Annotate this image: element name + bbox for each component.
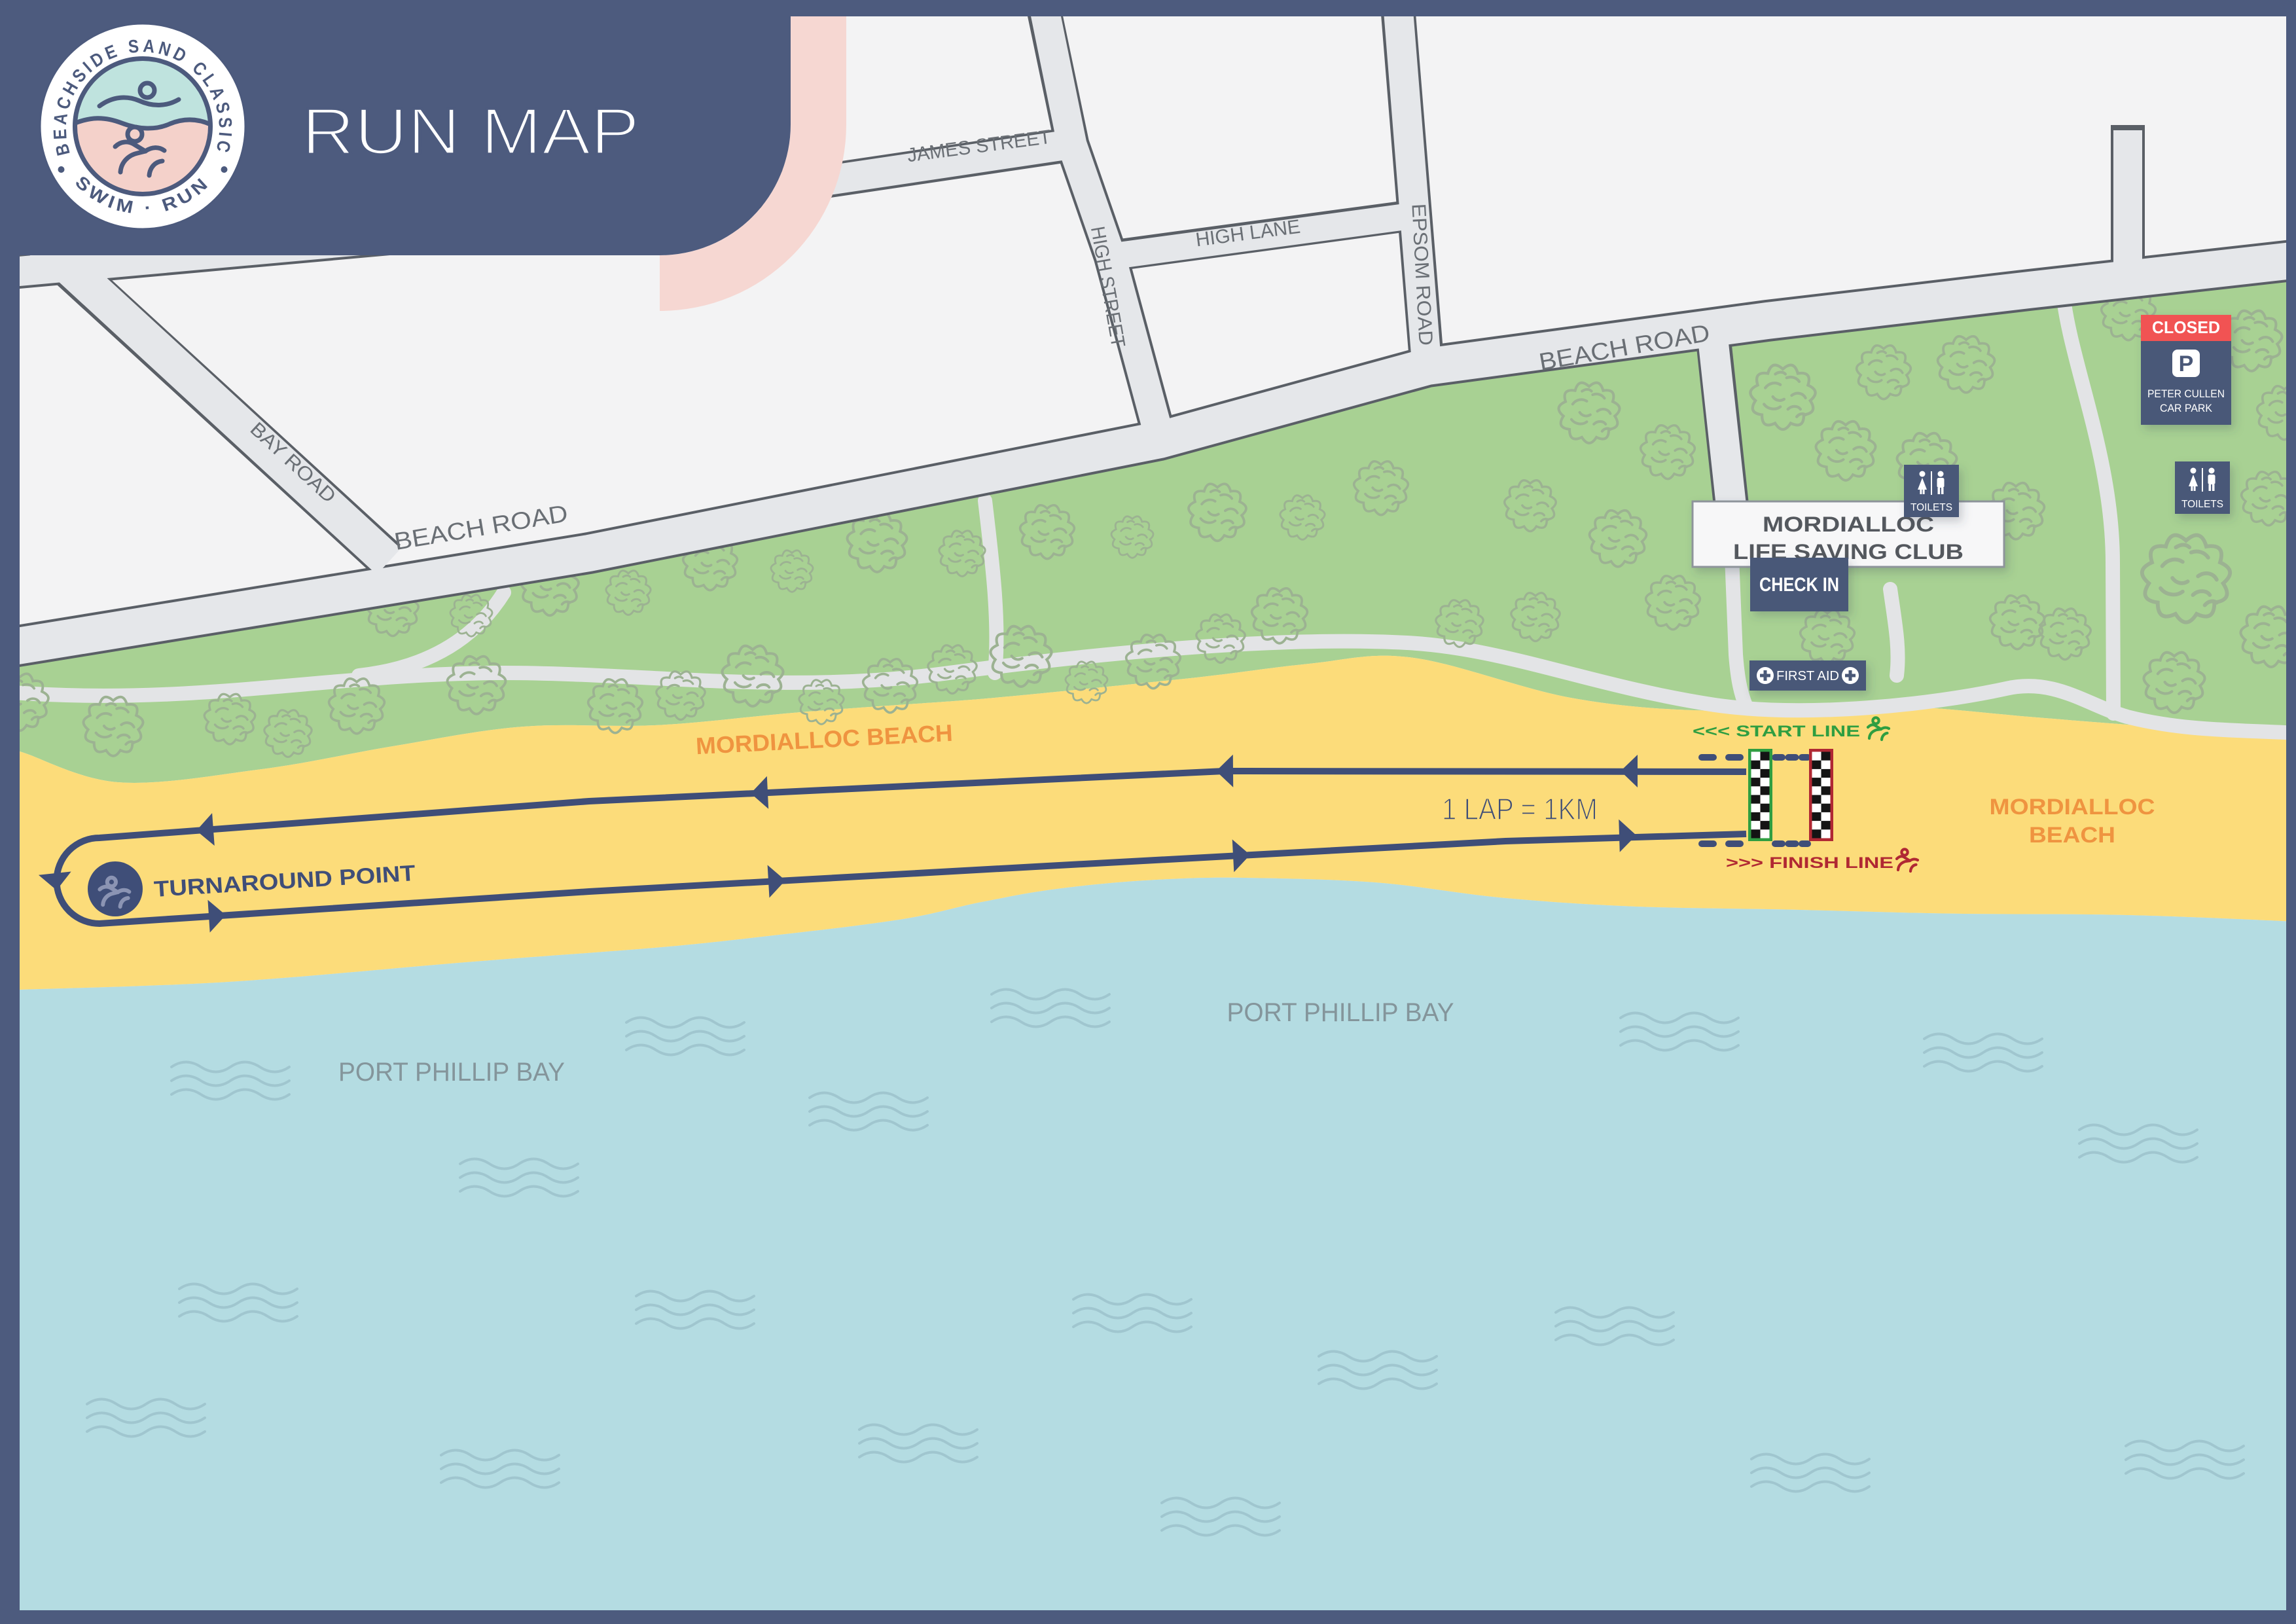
svg-text:<<< START LINE: <<< START LINE: [1693, 723, 1860, 740]
svg-text:MORDIALLOC: MORDIALLOC: [1990, 795, 2155, 820]
svg-text:CLOSED: CLOSED: [2152, 317, 2220, 337]
svg-text:FIRST AID: FIRST AID: [1776, 669, 1839, 683]
svg-text:CAR PARK: CAR PARK: [2160, 402, 2213, 414]
svg-text:P: P: [2179, 352, 2194, 376]
svg-text:BEACH: BEACH: [2029, 823, 2115, 848]
svg-text:RUN MAP: RUN MAP: [302, 95, 639, 168]
svg-text:PORT PHILLIP BAY: PORT PHILLIP BAY: [338, 1058, 565, 1087]
svg-text:TOILETS: TOILETS: [1910, 502, 1952, 513]
svg-text:PORT PHILLIP BAY: PORT PHILLIP BAY: [1227, 998, 1454, 1027]
svg-text:CHECK IN: CHECK IN: [1759, 574, 1839, 596]
svg-text:>>> FINISH LINE: >>> FINISH LINE: [1726, 854, 1893, 872]
svg-text:TOILETS: TOILETS: [2181, 499, 2223, 510]
svg-text:PETER CULLEN: PETER CULLEN: [2147, 388, 2225, 400]
svg-text:1 LAP = 1KM: 1 LAP = 1KM: [1442, 792, 1598, 826]
